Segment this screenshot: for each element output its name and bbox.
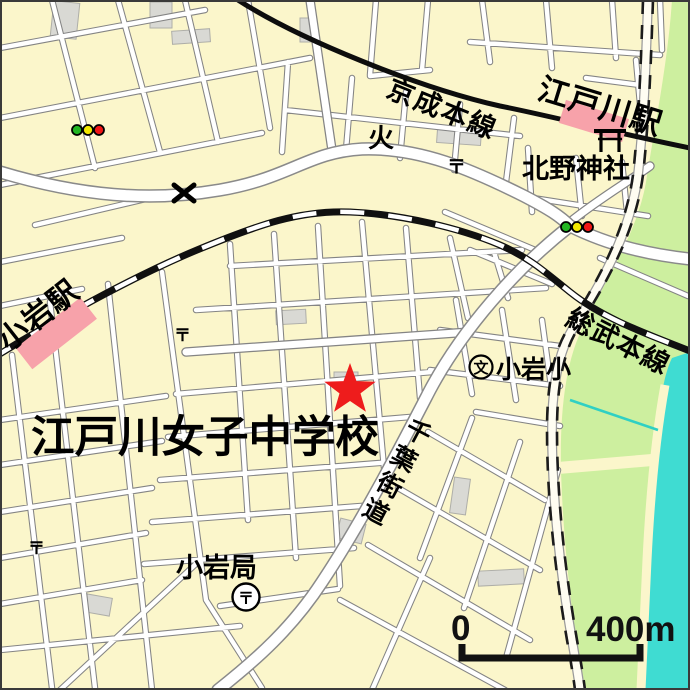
traffic-signal-icon (561, 222, 593, 232)
fire-station-icon: 火 (368, 123, 394, 153)
svg-text:文: 文 (473, 359, 489, 377)
destination-title-label: 江戸川女子中学校 (31, 414, 379, 462)
scale-start-label: 0 (451, 609, 470, 648)
koiwa-post-office-label: 小岩局 (176, 553, 257, 583)
school-icon: 文 (470, 356, 493, 379)
post-office-icon: 〒 (28, 539, 45, 558)
koiwa-elementary-label: 小岩小 (496, 356, 571, 384)
map-container: 火 〒 〒 〒 文 〒 京成本線 江戸川駅 北野神社 小岩駅 総武本線 小岩小 … (0, 0, 690, 690)
scale-end-label: 400m (586, 610, 676, 649)
traffic-signal-icon (72, 125, 104, 135)
svg-text:〒: 〒 (238, 591, 254, 608)
green-cross-path (558, 460, 652, 468)
map-canvas[interactable]: 火 〒 〒 〒 文 〒 京成本線 江戸川駅 北野神社 小岩駅 総武本線 小岩小 … (0, 0, 690, 690)
kitano-shrine-label: 北野神社 (522, 153, 630, 184)
post-office-icon: 〒 (174, 326, 191, 345)
post-office-icon: 〒 (447, 157, 466, 178)
post-office-circle-icon: 〒 (233, 584, 260, 611)
